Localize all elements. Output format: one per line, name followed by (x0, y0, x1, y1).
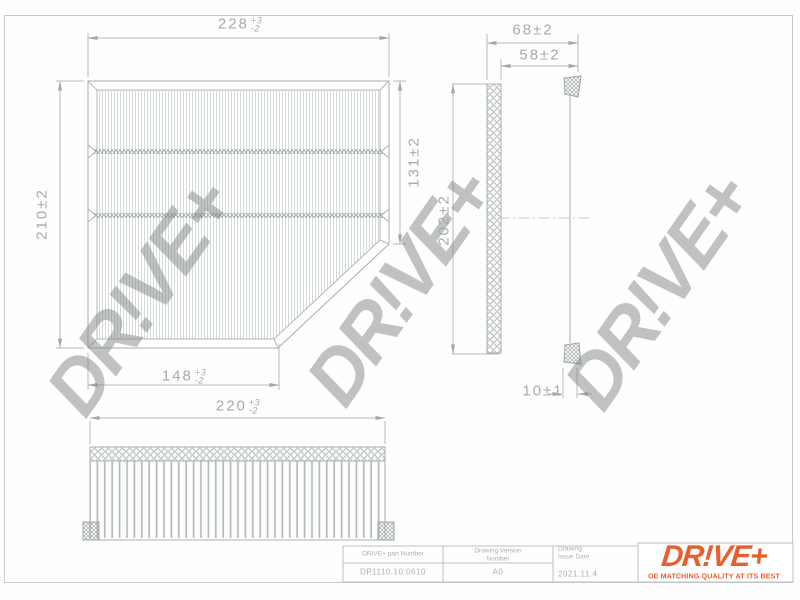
technical-linework (0, 0, 800, 600)
part-number-value: DP1110.10.0610 (360, 568, 426, 577)
issue-date-value: 2021.11.4 (558, 570, 598, 579)
drawing-version-value: A0 (493, 568, 504, 577)
dim-plan-width-bottom: 148 +3 -2 (162, 368, 206, 385)
part-number-label: DRIVE+ part Number (362, 550, 424, 558)
dim-value: 148 (162, 368, 193, 385)
drive-plus-logo: DR!VE+ (660, 540, 768, 574)
dim-tolerance: +3 -2 (195, 368, 206, 384)
dim-side-height: 202±2 (436, 194, 453, 246)
dim-side-seal-width: 10±1 (522, 383, 563, 400)
dim-side-depth-outer: 68±2 (512, 22, 553, 39)
dim-plan-height-right: 131±2 (406, 136, 423, 188)
front-dimension-lines (90, 418, 385, 444)
tol-minus: -2 (251, 24, 262, 32)
dim-plan-width-top: 228 +3 -2 (218, 16, 262, 33)
plan-view (56, 33, 406, 390)
issue-date-label: Drawing Issue Date (558, 546, 589, 561)
tol-minus: -2 (249, 406, 260, 414)
dim-value: 228 (218, 16, 249, 33)
dim-plan-height-left: 210±2 (34, 188, 51, 240)
tol-minus: -2 (195, 376, 206, 384)
logo-tagline: OE MATCHING QUALITY AT ITS BEST (648, 574, 780, 581)
dim-value: 220 (216, 398, 247, 415)
front-view (83, 418, 394, 540)
drawing-sheet: DR!VE+ DR!VE+ DR!VE+ 228 +3 -2 210±2 131… (0, 0, 800, 600)
dim-front-width: 220 +3 -2 (216, 398, 260, 415)
drawing-version-label: Drawing Version Number (474, 548, 521, 563)
dim-tolerance: +3 -2 (251, 16, 262, 32)
side-view (452, 34, 592, 398)
dim-tolerance: +3 -2 (249, 398, 260, 414)
dim-side-depth-inner: 58±2 (519, 47, 560, 64)
